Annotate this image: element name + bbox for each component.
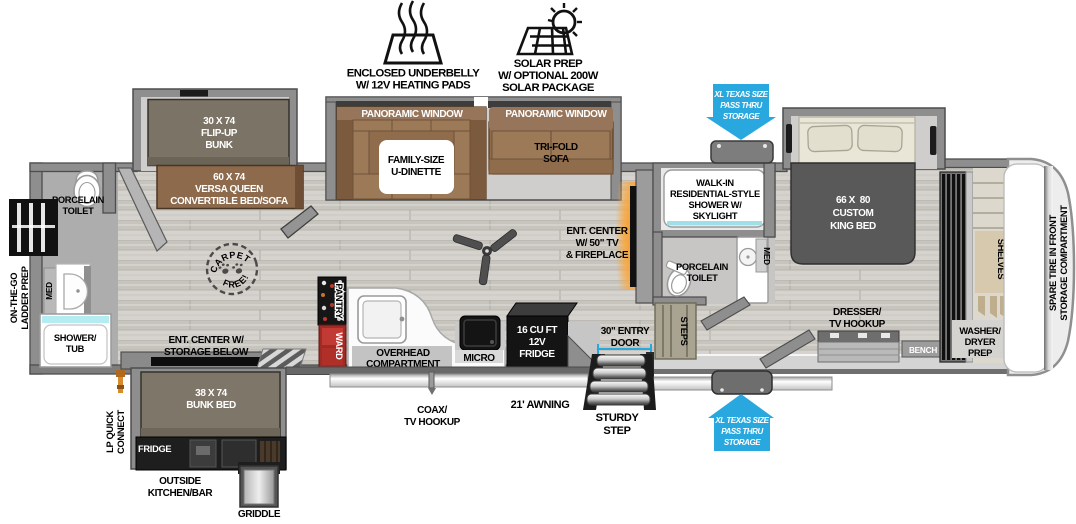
- svg-text:TRI-FOLD: TRI-FOLD: [534, 142, 578, 153]
- svg-text:SOFA: SOFA: [543, 154, 569, 165]
- svg-text:TOILET: TOILET: [62, 206, 94, 216]
- svg-text:SKYLIGHT: SKYLIGHT: [693, 211, 738, 221]
- svg-text:PORCELAIN: PORCELAIN: [52, 195, 105, 205]
- svg-text:OUTSIDE: OUTSIDE: [159, 476, 201, 487]
- svg-text:BUNK BED: BUNK BED: [186, 400, 236, 411]
- svg-text:TV HOOKUP: TV HOOKUP: [404, 417, 461, 428]
- svg-text:WASHER/: WASHER/: [959, 326, 1001, 336]
- svg-text:ENT. CENTER: ENT. CENTER: [566, 226, 628, 237]
- svg-text:60 X 74: 60 X 74: [213, 172, 246, 183]
- svg-text:TV HOOKUP: TV HOOKUP: [829, 319, 886, 330]
- svg-text:ENT. CENTER W/: ENT. CENTER W/: [169, 335, 245, 346]
- svg-text:PASS THRU: PASS THRU: [721, 427, 763, 436]
- svg-text:KITCHEN/BAR: KITCHEN/BAR: [148, 488, 214, 499]
- svg-text:PASS THRU: PASS THRU: [720, 101, 762, 110]
- svg-text:CONNECT: CONNECT: [116, 409, 126, 453]
- svg-text:16 CU FT: 16 CU FT: [517, 325, 557, 336]
- svg-text:WARD: WARD: [334, 332, 344, 360]
- svg-text:STURDY: STURDY: [596, 412, 640, 424]
- svg-text:FLIP-UP: FLIP-UP: [201, 128, 238, 139]
- svg-text:LP QUICK: LP QUICK: [105, 410, 115, 452]
- svg-text:BENCH: BENCH: [909, 346, 937, 355]
- svg-text:XL TEXAS SIZE: XL TEXAS SIZE: [713, 90, 768, 99]
- svg-text:STORAGE BELOW: STORAGE BELOW: [164, 347, 249, 358]
- svg-text:PANORAMIC WINDOW: PANORAMIC WINDOW: [505, 109, 607, 120]
- svg-text:VERSA QUEEN: VERSA QUEEN: [195, 184, 263, 195]
- svg-text:STORAGE: STORAGE: [724, 438, 761, 447]
- svg-text:FAMILY-SIZE: FAMILY-SIZE: [388, 155, 445, 166]
- svg-text:PORCELAIN: PORCELAIN: [676, 262, 729, 272]
- svg-text:PREP: PREP: [968, 348, 992, 358]
- svg-text:W/ 50" TV: W/ 50" TV: [576, 238, 620, 249]
- svg-text:DRYER: DRYER: [965, 337, 996, 347]
- svg-text:WALK-IN: WALK-IN: [696, 178, 734, 188]
- svg-text:ON-THE-GO: ON-THE-GO: [9, 273, 19, 324]
- svg-text:GRIDDLE: GRIDDLE: [238, 509, 281, 520]
- svg-text:SOLAR PREP: SOLAR PREP: [514, 58, 583, 70]
- svg-text:& FIREPLACE: & FIREPLACE: [566, 250, 629, 261]
- svg-text:FRIDGE: FRIDGE: [519, 349, 555, 360]
- svg-text:MED: MED: [762, 247, 771, 265]
- svg-text:PANORAMIC WINDOW: PANORAMIC WINDOW: [361, 109, 463, 120]
- svg-text:FRIDGE: FRIDGE: [138, 444, 171, 454]
- svg-text:DOOR: DOOR: [611, 338, 641, 349]
- svg-text:30 X 74: 30 X 74: [203, 116, 236, 127]
- svg-text:CONVERTIBLE BED/SOFA: CONVERTIBLE BED/SOFA: [170, 196, 288, 207]
- svg-text:CUSTOM: CUSTOM: [833, 208, 874, 219]
- svg-text:TOILET: TOILET: [686, 273, 718, 283]
- svg-text:21' AWNING: 21' AWNING: [511, 399, 570, 411]
- svg-text:LADDER PREP: LADDER PREP: [20, 266, 30, 329]
- svg-text:TUB: TUB: [66, 344, 85, 354]
- svg-text:MED: MED: [45, 282, 54, 300]
- svg-text:STEPS: STEPS: [679, 317, 689, 346]
- svg-text:12V: 12V: [529, 337, 546, 348]
- svg-text:SHOWER W/: SHOWER W/: [688, 200, 742, 210]
- svg-text:STORAGE COMPARTMENT: STORAGE COMPARTMENT: [1059, 205, 1069, 321]
- svg-text:RESIDENTIAL-STYLE: RESIDENTIAL-STYLE: [670, 189, 760, 199]
- svg-text:30" ENTRY: 30" ENTRY: [601, 326, 650, 337]
- svg-text:OVERHEAD: OVERHEAD: [376, 348, 430, 359]
- svg-text:KING BED: KING BED: [830, 221, 876, 232]
- svg-text:XL TEXAS SIZE: XL TEXAS SIZE: [714, 416, 769, 425]
- svg-text:MICRO: MICRO: [463, 353, 495, 364]
- svg-text:W/ 12V HEATING PADS: W/ 12V HEATING PADS: [356, 80, 471, 92]
- svg-text:PANTRY: PANTRY: [334, 283, 344, 319]
- svg-text:W/ OPTIONAL 200W: W/ OPTIONAL 200W: [498, 70, 599, 82]
- svg-text:STEP: STEP: [603, 425, 630, 437]
- svg-text:ENCLOSED UNDERBELLY: ENCLOSED UNDERBELLY: [347, 68, 481, 80]
- svg-text:SHOWER/: SHOWER/: [54, 333, 97, 343]
- svg-text:COAX/: COAX/: [417, 405, 447, 416]
- svg-text:38 X 74: 38 X 74: [195, 388, 228, 399]
- svg-text:BUNK: BUNK: [205, 140, 233, 151]
- svg-text:SPARE TIRE IN FRONT: SPARE TIRE IN FRONT: [1048, 214, 1058, 311]
- svg-text:66 X 80: 66 X 80: [836, 195, 871, 206]
- svg-text:U-DINETTE: U-DINETTE: [391, 167, 441, 178]
- svg-text:SOLAR PACKAGE: SOLAR PACKAGE: [502, 82, 595, 94]
- svg-text:DRESSER/: DRESSER/: [833, 307, 882, 318]
- svg-text:STORAGE: STORAGE: [723, 112, 760, 121]
